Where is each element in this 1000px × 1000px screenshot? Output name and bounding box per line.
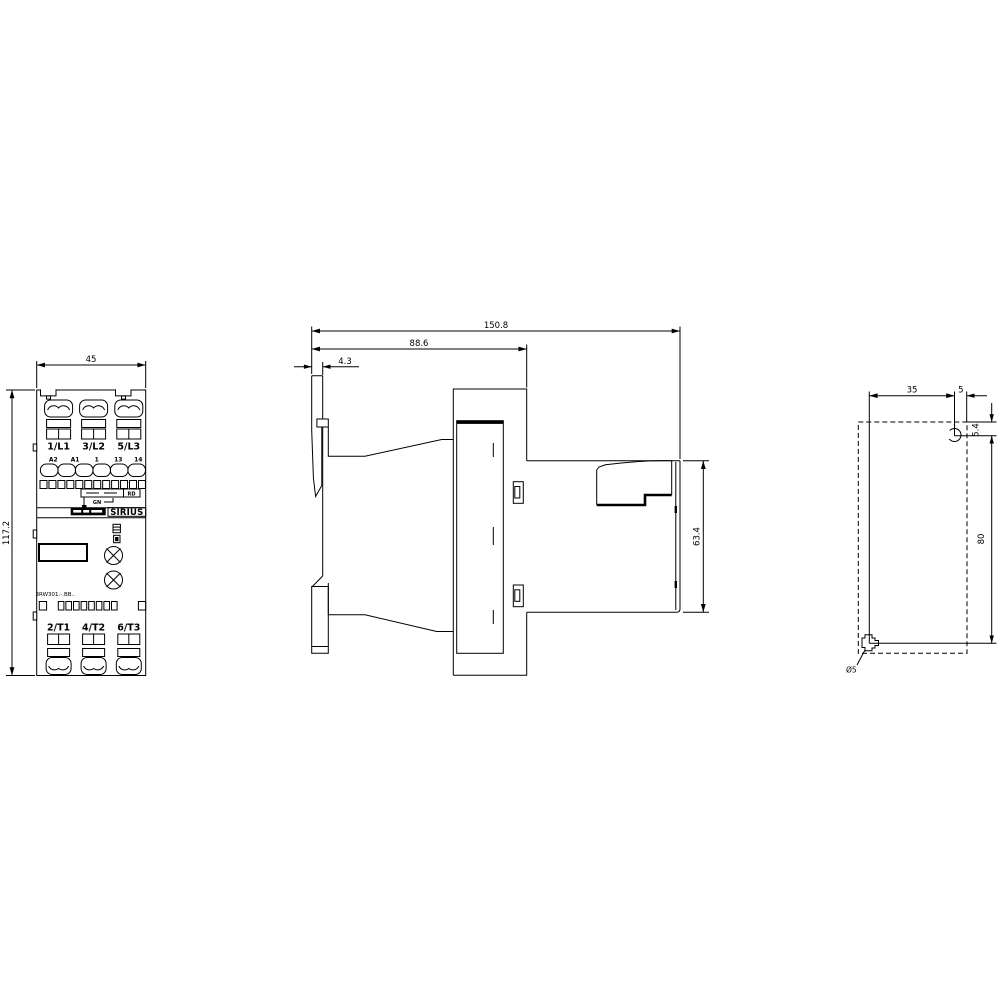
edge-offset-label: 5 [958,386,963,396]
aux-label-13: 13 [114,457,122,464]
side-housing-profile [328,389,526,675]
front-height-dimension: 117.2 [2,390,35,676]
brand-label: SIRIUS [110,508,143,518]
front-width-dimension: 45 [37,355,146,388]
dimension-drawing: 45 117.2 1/L1 [0,0,1000,1000]
bottom-terminal-group-2: 4/T2 [81,623,106,675]
side-tab-1 [33,444,37,451]
bottom-terminal-group-1: 2/T1 [46,623,71,675]
terminal-label-4T2: 4/T2 [82,623,105,634]
vent-slot-row [39,602,145,611]
front-plate-and-foot [312,427,329,653]
led-indicators [113,524,120,542]
hole-diameter-label: Ø5 [846,666,857,675]
led-red-label: RD [127,491,135,497]
side-view: 150.8 88.6 4.3 [294,321,709,675]
terminal-label-1L1: 1/L1 [47,442,70,453]
top-terminal-group-1: 1/L1 [45,400,73,453]
clip-tab [317,419,328,427]
terminal-label-6T3: 6/T3 [117,623,140,634]
front-height-label: 117.2 [2,521,12,545]
type-plate-mark-1 [73,510,81,513]
side-total-depth-label: 150.8 [484,321,508,331]
aux-label-1: 1 [95,457,99,464]
gn-leader [104,498,113,502]
type-plate-mark-3 [91,510,102,513]
side-rear-height-label: 63.4 [693,527,703,546]
mounting-hole-top [946,429,961,442]
brand-strip: SIRIUS [37,508,146,518]
din-release-clip [312,376,329,497]
aux-label-a2: A2 [49,457,58,464]
side-tab-3 [33,612,37,620]
mounting-outline [858,422,967,653]
display-window [39,544,87,561]
aux-screw-row [40,481,145,489]
hole-spacing-horizontal-label: 35 [907,386,918,396]
rotary-dial-1[interactable] [105,547,123,565]
aux-label-a1: A1 [71,457,80,464]
type-code-label: 3RW301.-.BB.. [36,592,76,598]
aux-terminal-labels: A2 A1 1 13 14 [49,457,143,464]
aux-label-14: 14 [134,457,142,464]
front-view: 45 117.2 1/L1 [2,355,146,676]
top-notch-right-slot [122,396,126,399]
edge-offset-dimension: 5 [958,386,987,398]
side-rear-section [527,461,680,613]
hole-spacing-horizontal-dimension: 35 [869,386,954,398]
top-notch-left [41,389,57,396]
status-label-window: RD GN [81,489,140,509]
side-front-offset-dimension: 4.3 [294,357,359,375]
side-rear-height-dimension: 63.4 [683,461,709,613]
drawing-svg: 45 117.2 1/L1 [0,0,1000,1000]
type-plate-mark-2 [83,510,89,513]
mounting-view: 35 5 5.4 80 Ø5 [846,386,997,675]
mounting-hole-bottom: Ø5 [846,635,879,675]
hole-spacing-vertical-label: 80 [977,534,987,545]
aux-terminal-clamps [40,464,145,477]
top-offset-dimension: 5.4 [972,403,994,444]
terminal-label-2T1: 2/T1 [47,623,70,634]
side-front-offset-label: 4.3 [338,357,352,367]
side-total-depth-dimension: 150.8 [312,321,680,459]
terminal-label-3L2: 3/L2 [82,442,105,453]
led-green-label: GN [93,500,101,506]
top-notch-left-slot [47,396,51,399]
top-offset-label: 5.4 [972,423,982,437]
terminal-label-5L3: 5/L3 [117,442,140,453]
bottom-terminal-group-3: 6/T3 [116,623,141,675]
led-red-indicator [113,524,120,532]
top-terminal-group-3: 5/L3 [115,400,143,453]
front-width-label: 45 [86,355,97,365]
top-terminal-group-2: 3/L2 [80,400,108,453]
hole-spacing-vertical-dimension: 80 [977,436,994,644]
side-tab-2 [33,530,37,538]
side-body-depth-label: 88.6 [410,339,429,349]
top-notch-right [116,389,132,396]
rotary-dial-2[interactable] [105,571,123,589]
